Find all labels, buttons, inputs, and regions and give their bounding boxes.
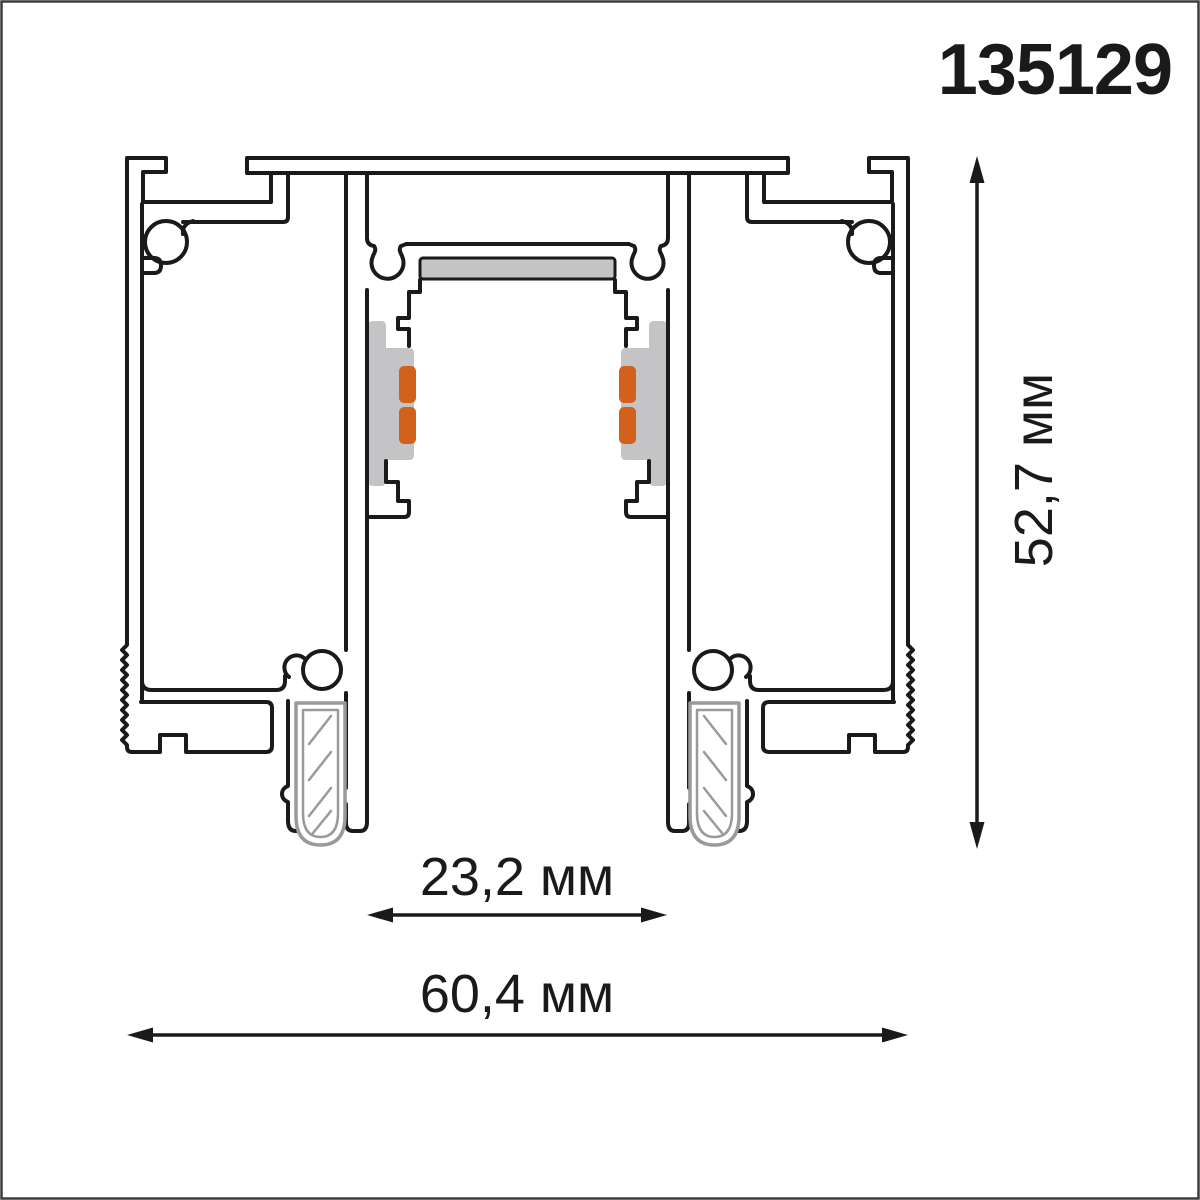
dimension-outer-width: 60,4 мм <box>127 964 908 1043</box>
arrow-down-icon <box>970 822 985 849</box>
outer-width-dimension-label: 60,4 мм <box>420 964 614 1024</box>
height-dimension-label: 52,7 мм <box>1004 373 1064 567</box>
inner-width-dimension-label: 23,2 мм <box>420 847 614 907</box>
arrow-right-icon <box>641 908 667 923</box>
dimension-inner-width: 23,2 мм <box>367 847 667 923</box>
dimension-height: 52,7 мм <box>970 156 1065 849</box>
light-strip <box>420 258 615 279</box>
arrow-left-icon <box>127 1028 153 1043</box>
technical-drawing: 52,7 мм 23,2 мм 60,4 мм 135129 <box>0 0 1200 1200</box>
page: 52,7 мм 23,2 мм 60,4 мм 135129 <box>0 0 1200 1200</box>
arrow-right-icon <box>882 1028 908 1043</box>
arrow-left-icon <box>367 908 393 923</box>
product-code: 135129 <box>938 30 1172 110</box>
arrow-up-icon <box>970 156 985 183</box>
